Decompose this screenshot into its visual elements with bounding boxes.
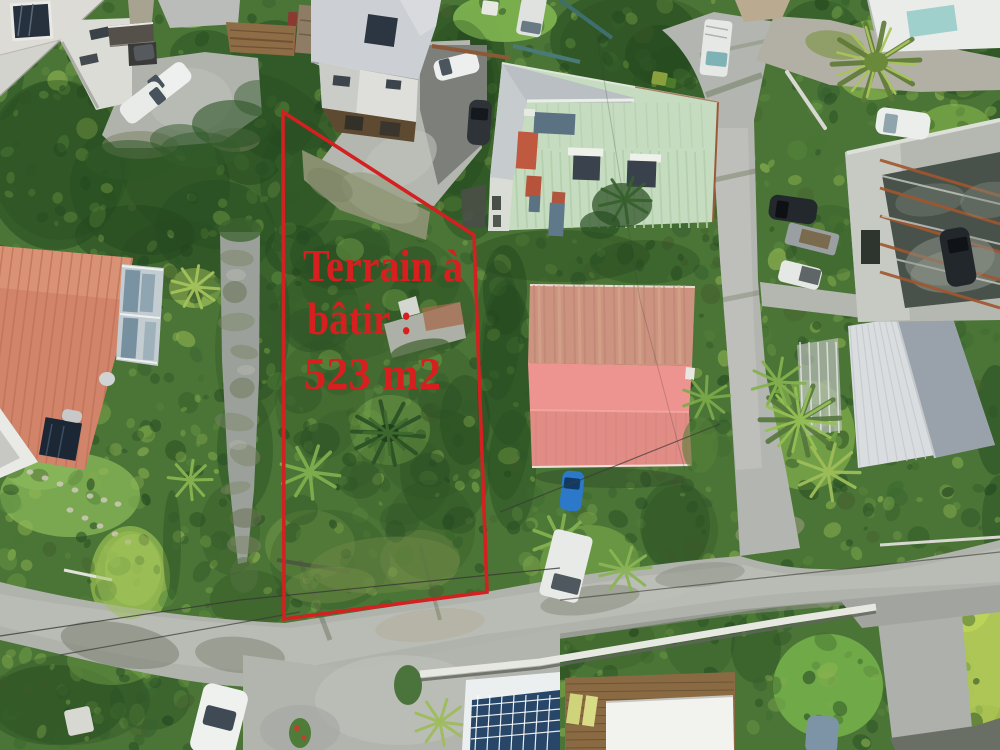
svg-text:bâtir :: bâtir : <box>307 293 413 344</box>
svg-text:Terrain à: Terrain à <box>303 240 463 291</box>
svg-text:523 m2: 523 m2 <box>304 348 441 399</box>
